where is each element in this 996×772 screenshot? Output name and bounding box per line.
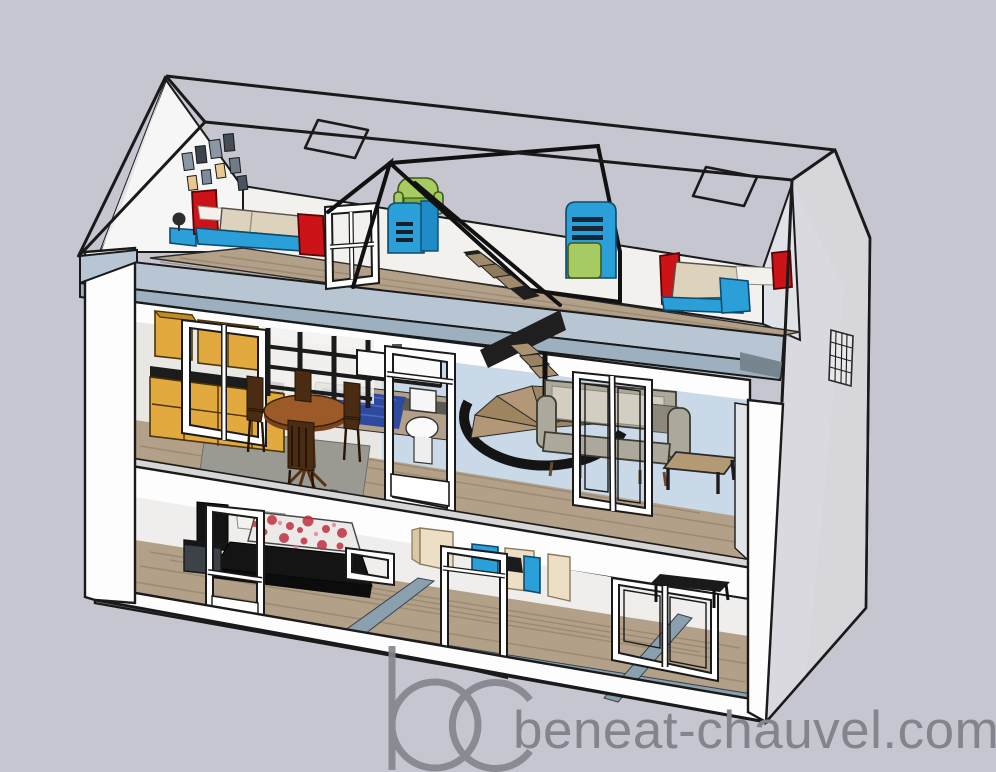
desk-fan (173, 213, 186, 226)
left-end-wall (85, 248, 135, 603)
gable-grid-window (829, 330, 853, 386)
watermark-site-text: beneat-chauvel.com (513, 702, 996, 760)
skylight-left (305, 120, 368, 158)
bedside-table (170, 228, 196, 246)
house-3d-scene (0, 0, 996, 772)
wardrobe-green-door (566, 202, 616, 278)
blue-cabinet (388, 201, 438, 253)
house-cutaway-render: beneat-chauvel.com (0, 0, 996, 772)
roof-ridge (166, 76, 835, 150)
